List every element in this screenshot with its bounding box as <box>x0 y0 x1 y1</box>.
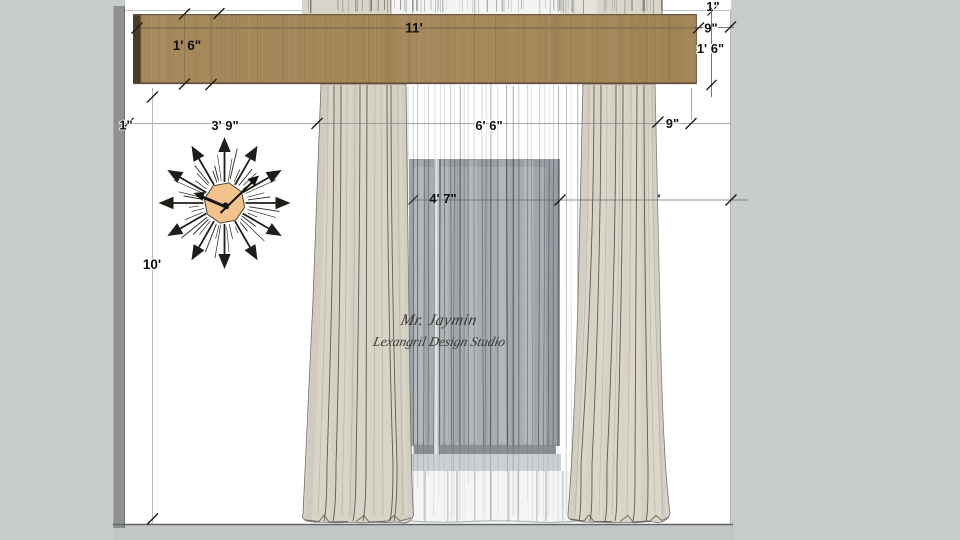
svg-text:9": 9" <box>666 116 679 131</box>
svg-text:6' 6": 6' 6" <box>475 118 502 133</box>
svg-text:4' 7": 4' 7" <box>429 191 456 206</box>
svg-text:Mr. Jaymin: Mr. Jaymin <box>398 312 478 329</box>
svg-text:10': 10' <box>143 257 161 272</box>
svg-text:1' 6": 1' 6" <box>173 38 201 53</box>
svg-text:': ' <box>658 192 661 206</box>
svg-text:1": 1" <box>706 0 719 14</box>
svg-text:11': 11' <box>405 21 422 36</box>
svg-text:1' 6": 1' 6" <box>697 41 724 56</box>
svg-text:9": 9" <box>704 21 717 36</box>
svg-text:1": 1" <box>119 118 132 133</box>
svg-text:Lexangril Design Studio: Lexangril Design Studio <box>371 334 507 349</box>
svg-text:3' 9": 3' 9" <box>211 118 238 133</box>
